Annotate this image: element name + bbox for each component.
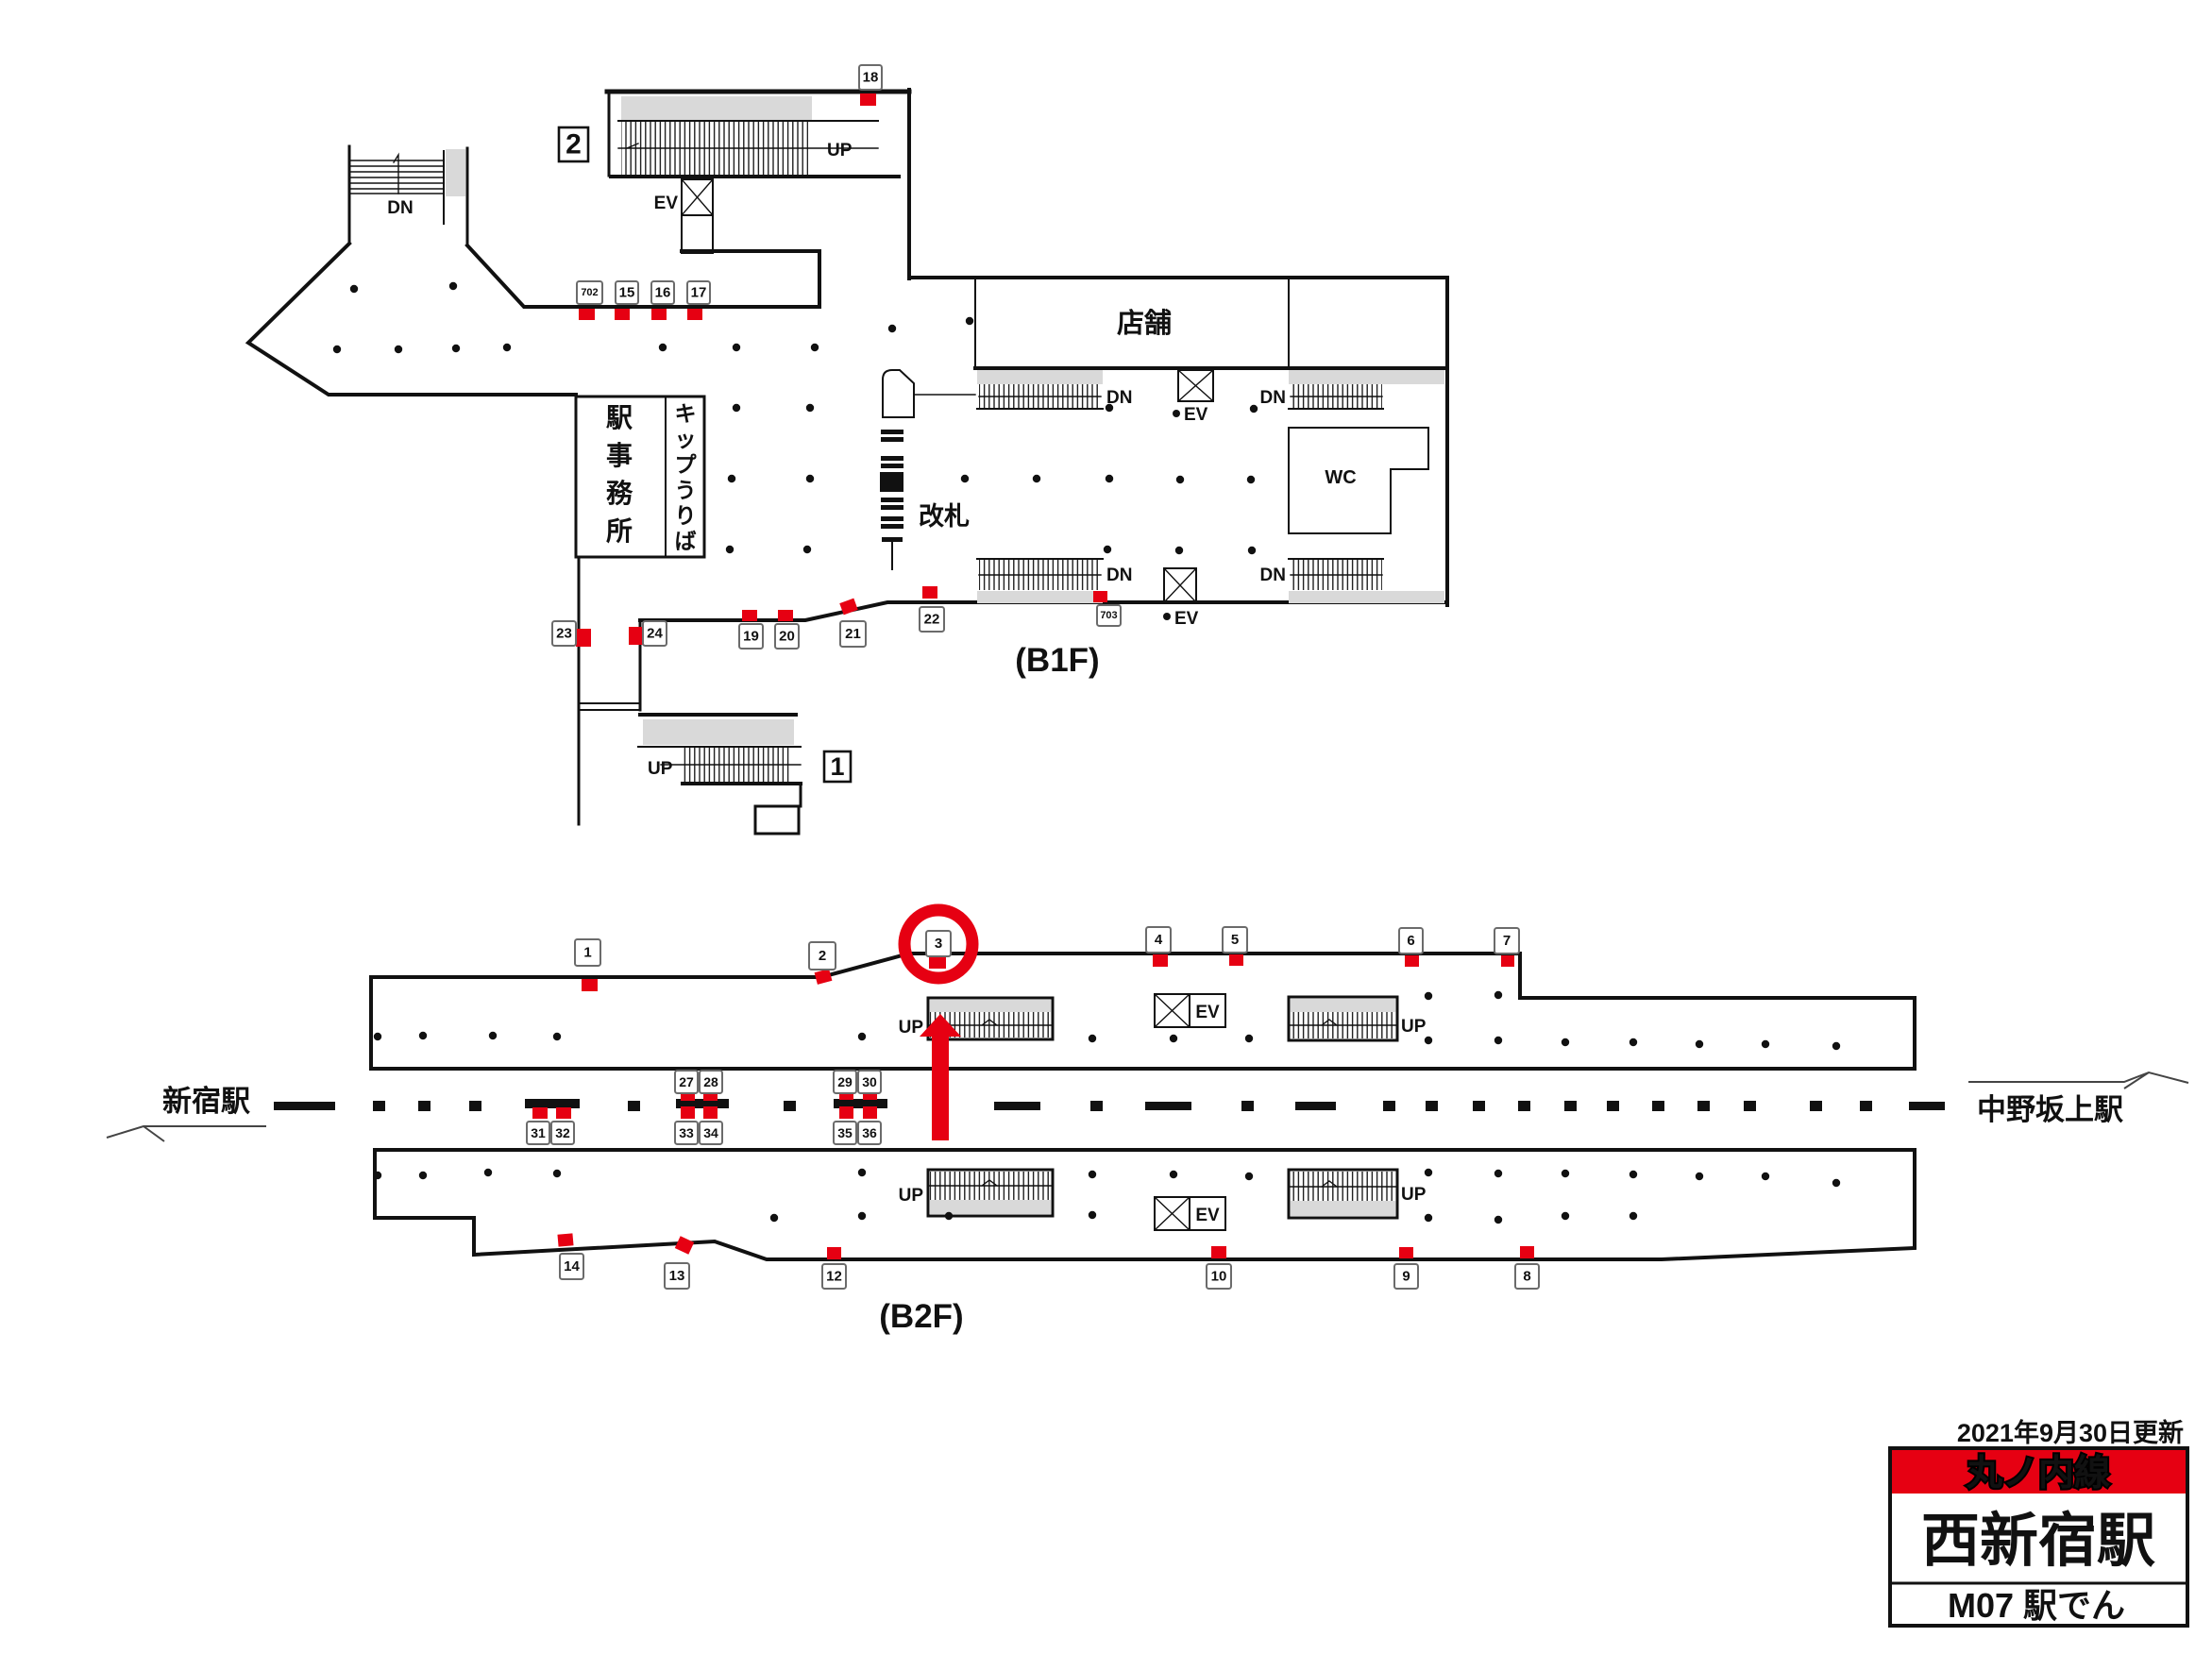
up-label: UP [899,1018,924,1038]
up-label: UP [899,1186,924,1206]
ev-label: EV [654,194,679,213]
ad-position-number: 27 [679,1074,694,1089]
b1f-floor-label: (B1F) [1015,642,1099,679]
ad-position-number: 24 [647,626,663,642]
elevator-icon: EV [1155,994,1225,1027]
escalator-down-top-right-icon: DN [1260,370,1444,409]
ad-position-24: 24 [629,621,667,646]
b2f-lower-platform [375,1150,1915,1259]
dn-label: DN [1260,388,1286,408]
ad-position-number: 16 [655,285,671,301]
dn-label: DN [1106,565,1132,585]
up-label: UP [827,141,853,160]
ad-position-14: 14 [557,1233,583,1279]
track-dashes [274,1099,1945,1111]
ad-position-10: 10 [1207,1246,1231,1289]
arrow-to-shinjuku-icon [107,1126,266,1141]
updated-date: 2021年9月30日更新 [1957,1418,2184,1447]
ev-label: EV [1195,1003,1220,1022]
ad-position-28: 28 [700,1071,722,1101]
ad-position-number: 703 [1100,610,1117,621]
arrow-to-nakanosakaue-icon [1968,1072,2188,1089]
ad-position-number: 20 [779,629,795,645]
prev-station-label: 新宿駅 [162,1085,250,1118]
station-map-svg: UP EV DN 駅事務所 キップうりば [0,0,2212,1649]
station-name: 西新宿駅 [1921,1509,2155,1574]
line-name: 丸ノ内線 [1966,1454,2110,1494]
up-label: UP [648,759,673,779]
ad-position-9: 9 [1394,1247,1418,1289]
ad-position-17: 17 [687,281,710,320]
ad-position-number: 36 [862,1125,877,1140]
ad-position-33: 33 [675,1106,698,1144]
ad-position-20: 20 [775,610,799,649]
ad-position-7: 7 [1494,928,1519,967]
ad-position-number: 35 [837,1125,853,1140]
highlight-arrow-shaft [932,1035,949,1140]
ad-position-number: 702 [581,287,598,298]
escalator-up-lower-left-icon: UP [899,1170,1053,1216]
ad-position-30: 30 [858,1071,881,1100]
gate-label: 改札 [919,502,970,531]
ad-position-number: 9 [1402,1269,1410,1285]
ad-position-number: 6 [1407,933,1414,949]
b2f-plan: UP UP EV UP UP [107,954,2188,1335]
ad-position-number: 14 [564,1258,580,1274]
ad-position-number: 19 [743,629,759,645]
passage-lines [579,703,640,710]
wc-label: WC [1325,467,1356,488]
dn-label: DN [1260,565,1286,585]
ticket-window-label: キップうりば [675,401,698,553]
elevator-icon: EV [1155,1197,1225,1230]
station-code: M07 駅でん [1948,1586,2125,1625]
ev-label: EV [1174,609,1199,629]
ad-position-number: 17 [691,285,707,301]
station-floorplan-page: UP EV DN 駅事務所 キップうりば [0,0,2212,1649]
ad-position-703: 703 [1093,591,1121,626]
ad-position-16: 16 [651,281,674,320]
ad-position-number: 3 [935,936,942,952]
ad-position-number: 5 [1231,932,1239,948]
ad-position-number: 8 [1523,1269,1530,1285]
b1f-plan: UP EV DN 駅事務所 キップうりば [248,90,1447,834]
elevator-icon: EV [654,179,713,253]
ad-position-19: 19 [739,610,763,649]
ad-position-23: 23 [552,621,591,647]
ad-position-8: 8 [1515,1246,1539,1289]
ad-position-15: 15 [615,281,638,320]
ad-position-number: 7 [1503,933,1511,949]
escalator-down-bottom-right-icon: DN [1260,559,1444,603]
ad-position-3: 3 [926,931,951,969]
dn-staircase-icon: DN [349,146,467,245]
ev-label: EV [1184,405,1208,425]
b1f-north-wall [467,245,819,307]
ad-position-22: 22 [920,586,944,632]
ad-position-number: 12 [826,1269,842,1285]
ad-position-number: 23 [556,626,572,642]
ad-position-12: 12 [822,1247,846,1289]
ad-position-number: 34 [703,1125,718,1140]
ad-position-number: 10 [1211,1269,1227,1285]
ad-position-32: 32 [551,1107,574,1144]
up-label: UP [1401,1185,1427,1205]
ad-position-number: 15 [619,285,635,301]
ev-label: EV [1195,1206,1220,1225]
shops-label: 店舗 [1117,308,1172,339]
wc-room: WC [1289,428,1428,533]
svg-text:2: 2 [566,129,582,160]
ad-position-number: 2 [819,948,826,964]
b2f-floor-label: (B2F) [879,1298,963,1335]
ad-position-number: 22 [924,612,940,628]
elevator-icon: EV [1173,370,1213,425]
ad-position-34: 34 [700,1106,722,1144]
gate-booth-icon [883,370,975,417]
ad-position-21: 21 [839,599,866,647]
ad-position-18: 18 [859,65,882,106]
ad-position-29: 29 [834,1071,856,1100]
ad-position-31: 31 [527,1107,549,1144]
ad-position-number: 1 [583,945,591,961]
b2f-upper-platform [371,954,1915,1069]
ad-position-number: 33 [679,1125,694,1140]
escalator-down-bottom-left-icon: DN [977,559,1132,603]
exit-number-2: 2 [559,127,588,161]
escalator-up-upper-left-icon: UP [899,998,1053,1039]
hall-north-east-wall [909,278,1447,605]
ad-position-27: 27 [675,1071,698,1101]
ad-position-702: 702 [577,281,602,320]
ad-position-number: 13 [669,1268,685,1284]
ad-position-number: 4 [1155,932,1163,948]
ad-position-1: 1 [575,939,600,991]
station-office: 駅事務所 キップうりば [576,397,704,557]
ad-position-number: 31 [531,1125,546,1140]
ad-position-number: 21 [845,626,861,642]
ad-position-number: 30 [862,1074,877,1089]
dn-label: DN [387,198,413,218]
ad-position-5: 5 [1223,927,1247,966]
next-station-label: 中野坂上駅 [1977,1093,2123,1126]
b2f-pillars [374,991,1840,1224]
ticket-gates-icon [880,430,903,569]
ad-position-number: 32 [555,1125,570,1140]
escalator-up-upper-right-icon: UP [1289,997,1427,1040]
exit-number-1: 1 [824,751,851,782]
office-label: 駅事務所 [606,403,633,546]
ad-position-number: 28 [703,1074,718,1089]
ad-position-4: 4 [1146,927,1171,967]
ad-position-36: 36 [858,1106,881,1144]
b1f-west-wall [248,244,576,395]
escalator-up-lower-right-icon: UP [1289,1170,1427,1218]
exit1-stairs-icon: UP [638,715,801,834]
ad-position-number: 18 [863,70,879,86]
ad-position-6: 6 [1399,928,1423,967]
up-label: UP [1401,1017,1427,1037]
legend: 2021年9月30日更新 丸ノ内線 西新宿駅 M07 駅でん [1890,1418,2187,1626]
b1f-south-wall [640,602,1447,620]
elevator-icon: EV [1163,568,1199,629]
svg-text:1: 1 [830,752,844,781]
ad-position-35: 35 [834,1106,856,1144]
ad-position-number: 29 [837,1074,853,1089]
